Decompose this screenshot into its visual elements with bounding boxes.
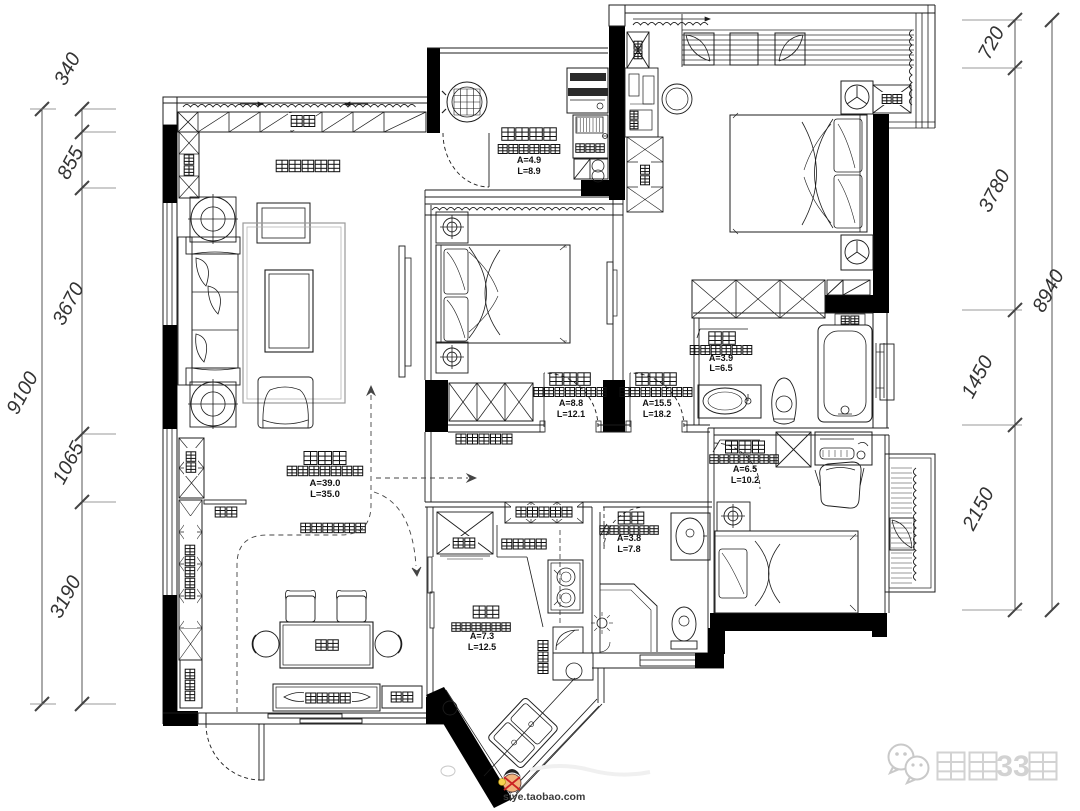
svg-text:A=39.0: A=39.0	[310, 478, 341, 489]
svg-text:L=7.8: L=7.8	[617, 544, 640, 554]
svg-text:L=10.2: L=10.2	[731, 475, 759, 485]
svg-text:A=15.5: A=15.5	[642, 398, 671, 408]
svg-text:L=6.5: L=6.5	[709, 363, 732, 373]
svg-text:L=18.2: L=18.2	[643, 409, 671, 419]
svg-text:L=8.9: L=8.9	[517, 166, 540, 176]
svg-text:A=3.9: A=3.9	[709, 353, 733, 363]
svg-text:L=12.5: L=12.5	[468, 642, 496, 652]
svg-text:A=6.5: A=6.5	[733, 464, 757, 474]
svg-text:A=8.8: A=8.8	[559, 398, 583, 408]
svg-text:A=3.8: A=3.8	[617, 533, 641, 543]
svg-text:A=4.9: A=4.9	[517, 155, 541, 165]
svg-text:33: 33	[996, 750, 1029, 783]
svg-text:L=35.0: L=35.0	[310, 489, 340, 500]
svg-text:L=12.1: L=12.1	[557, 409, 585, 419]
svg-text:A=7.3: A=7.3	[470, 631, 494, 641]
svg-text:siye.taobao.com: siye.taobao.com	[503, 791, 585, 803]
